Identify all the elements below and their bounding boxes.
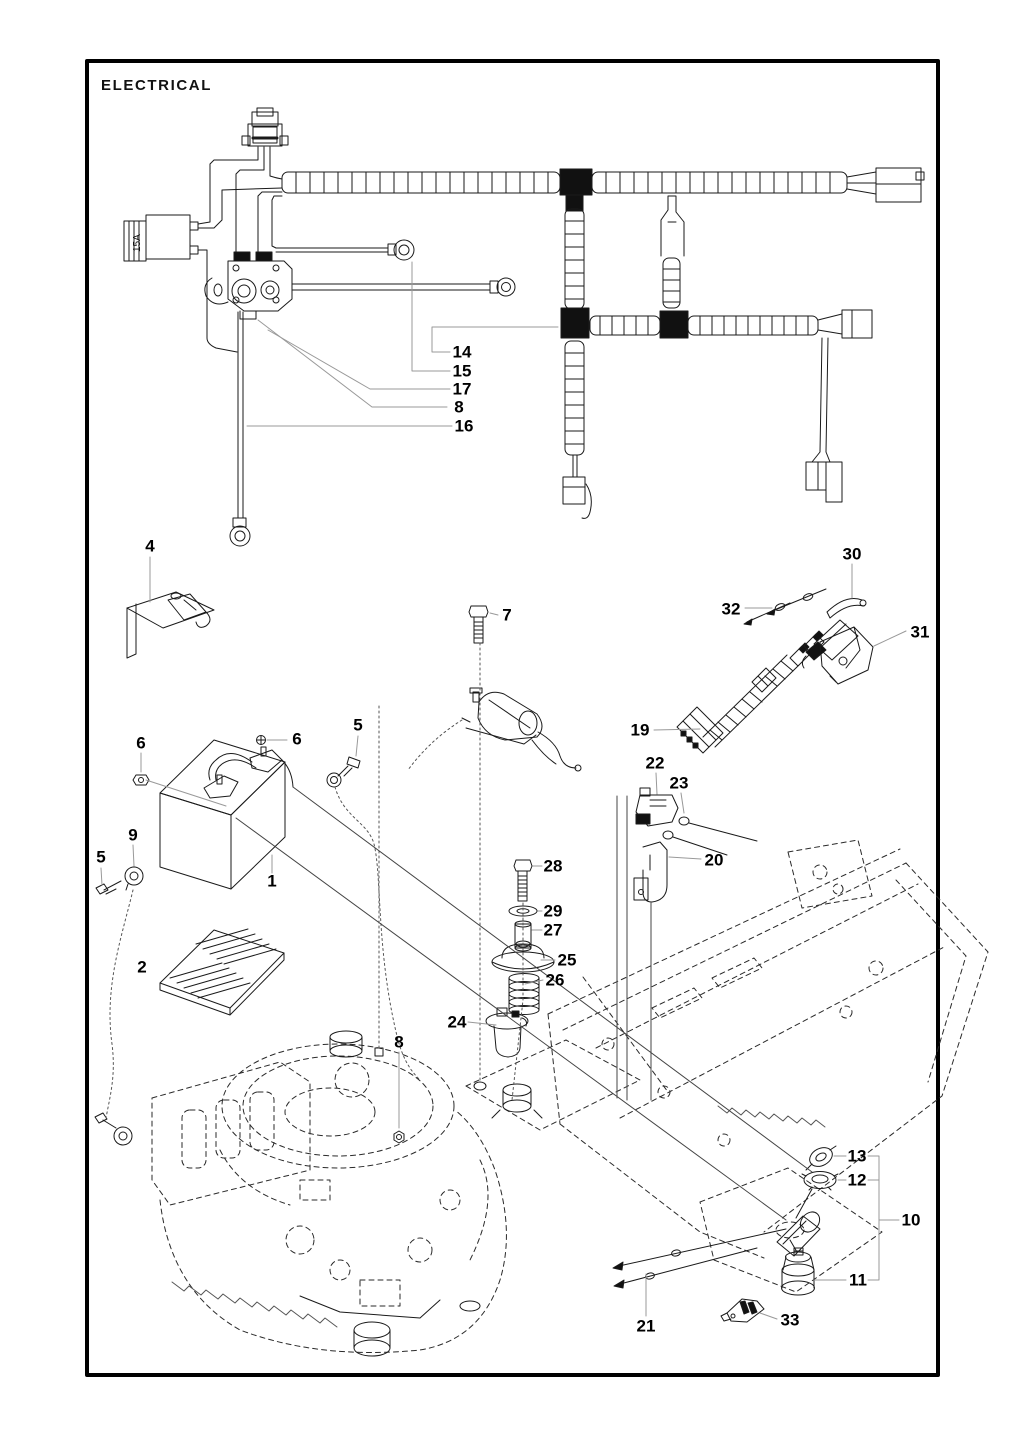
cap-25 [492, 941, 554, 972]
harness-mid-connector [842, 310, 872, 338]
hold-down-bracket-4 [127, 592, 214, 658]
bolt-5-left [96, 881, 121, 894]
callout-22: 22 [646, 755, 665, 772]
callout-13: 13 [848, 1148, 867, 1165]
switch-body-30-group [802, 599, 866, 669]
bracket-31 [820, 627, 873, 684]
ring-terminal-15 [388, 240, 414, 260]
callout-6: 6 [136, 735, 145, 752]
engine-rail-teeth [172, 1282, 337, 1327]
routing-guides [106, 643, 523, 1118]
callout-15: 15 [453, 363, 472, 380]
engine-phantom [152, 1044, 506, 1353]
page-border [87, 61, 938, 1375]
leader-lines [101, 262, 906, 1319]
pins-21 [613, 1229, 786, 1288]
cable-9-engine-end [95, 1113, 132, 1145]
j-bracket-20 [634, 842, 667, 902]
callout-8: 8 [454, 399, 463, 416]
battery-mat-2 [160, 929, 284, 1015]
callout-1: 1 [267, 873, 276, 890]
callout-5: 5 [96, 849, 105, 866]
switch-stack [486, 860, 554, 1118]
harness-end-connector [563, 477, 591, 518]
harness-l-connector [806, 462, 842, 502]
stack-mount [492, 1084, 542, 1118]
callout-25: 25 [558, 952, 577, 969]
callout-26: 26 [546, 972, 565, 989]
callout-6: 6 [292, 731, 301, 748]
callout-4: 4 [145, 538, 154, 555]
starter-solenoid [205, 252, 292, 319]
fuse-rating-label: 15A [132, 234, 143, 252]
key-13 [806, 1144, 836, 1170]
association-lines [236, 787, 812, 1220]
battery-cable-terminal-16 [230, 518, 250, 546]
battery-1 [160, 740, 285, 889]
bolt-5-top-right [327, 757, 360, 787]
callout-7: 7 [502, 607, 511, 624]
harness-right-connector [876, 168, 924, 202]
callout-17: 17 [453, 381, 472, 398]
callout-29: 29 [544, 903, 563, 920]
callout-30: 30 [843, 546, 862, 563]
diagram-canvas: 15A [0, 0, 1024, 1434]
callout-5: 5 [353, 717, 362, 734]
key-switch-group [777, 1144, 838, 1295]
switch-cylinder [777, 1208, 824, 1256]
nut-6-right [257, 736, 266, 745]
sensor-harness-group [677, 589, 873, 753]
connector-33 [721, 1299, 764, 1322]
callout-32: 32 [722, 601, 741, 618]
callout-21: 21 [637, 1318, 656, 1335]
lever-30 [827, 599, 864, 619]
battery-group [95, 736, 360, 1146]
callout-19: 19 [631, 722, 650, 739]
interlock-switch-group [617, 788, 757, 1100]
callout-11: 11 [849, 1272, 867, 1289]
callout-23: 23 [670, 775, 689, 792]
parts-diagram-page: 15A [0, 0, 1024, 1434]
pins-32 [744, 589, 826, 625]
cable-clip [752, 668, 776, 692]
callout-14: 14 [453, 344, 472, 361]
cable-9 [125, 867, 143, 890]
bolt-28 [514, 860, 532, 901]
page-title: ELECTRICAL [101, 77, 212, 94]
callout-9: 9 [128, 827, 137, 844]
engine-nut-8 [394, 1131, 404, 1143]
battery-cables-top [204, 747, 293, 798]
callout-28: 28 [544, 858, 563, 875]
callout-10: 10 [902, 1212, 921, 1229]
pins-23 [663, 817, 757, 855]
callout-16: 16 [455, 418, 474, 435]
callout-2: 2 [137, 959, 146, 976]
harness-top-connector [242, 108, 288, 146]
rubber-mount-11 [782, 1248, 815, 1295]
callout-24: 24 [448, 1014, 467, 1031]
callout-8: 8 [394, 1034, 403, 1051]
switch-24 [486, 1008, 528, 1057]
callout-12: 12 [848, 1172, 867, 1189]
ring-terminal-right [490, 278, 515, 296]
callout-20: 20 [705, 852, 724, 869]
callout-31: 31 [911, 624, 930, 641]
chassis-rack-teeth [718, 1106, 825, 1127]
fuse-holder: 15A [124, 215, 198, 261]
callout-33: 33 [781, 1312, 800, 1329]
spring-26 [509, 974, 539, 1015]
callout-27: 27 [544, 922, 563, 939]
